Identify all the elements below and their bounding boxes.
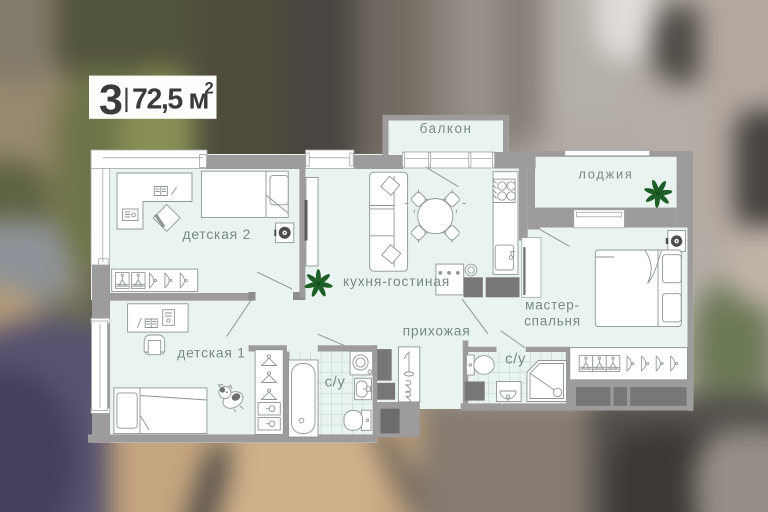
svg-text:с/у: с/у: [505, 350, 526, 367]
svg-text:с/у: с/у: [325, 373, 346, 390]
svg-text:2: 2: [205, 79, 214, 97]
svg-text:спальня: спальня: [524, 314, 581, 329]
svg-text:мастер-: мастер-: [525, 297, 580, 312]
svg-text:прихожая: прихожая: [403, 323, 471, 338]
svg-text:3: 3: [99, 76, 123, 124]
svg-text:детская 1: детская 1: [177, 345, 246, 360]
svg-text:72,5 м: 72,5 м: [132, 83, 208, 115]
svg-text:лоджия: лоджия: [578, 166, 633, 181]
svg-text:детская 2: детская 2: [183, 227, 252, 242]
svg-text:балкон: балкон: [420, 121, 473, 136]
svg-text:кухня-гостиная: кухня-гостиная: [343, 274, 450, 289]
